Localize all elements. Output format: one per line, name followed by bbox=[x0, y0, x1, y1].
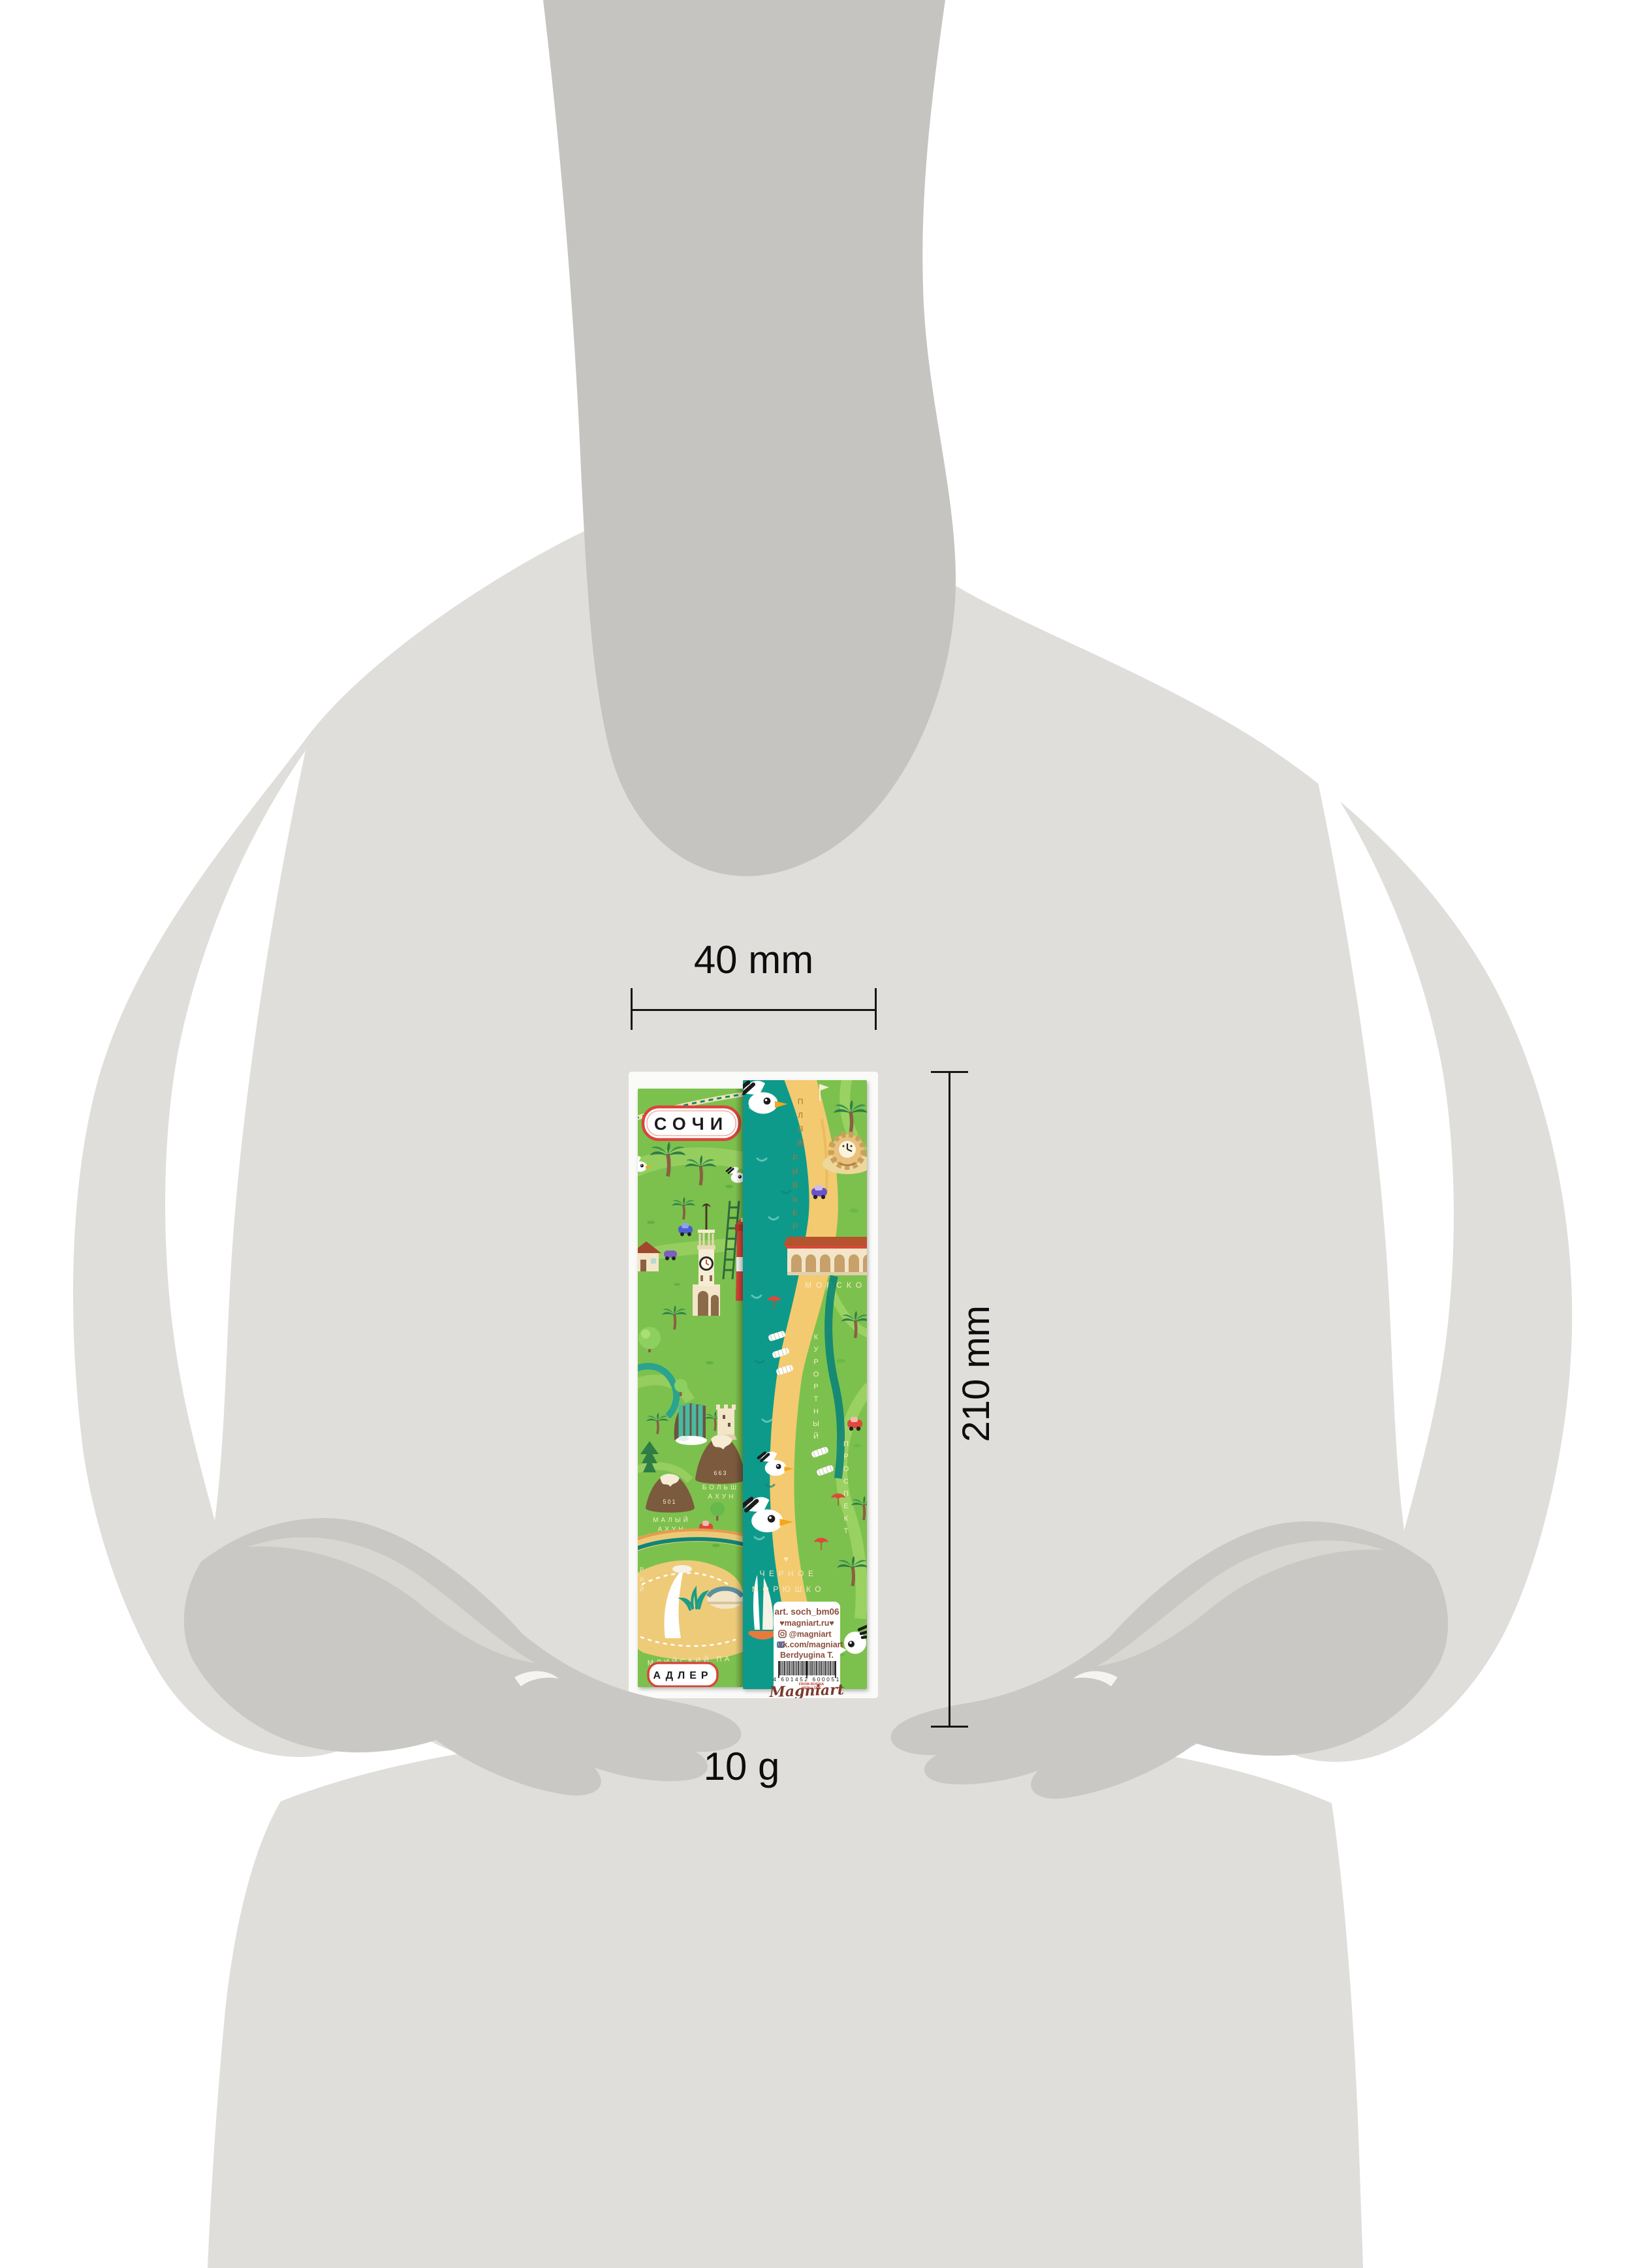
bookmark-back: ПЛЯЖ РИВЬЕРА bbox=[740, 1077, 876, 1689]
sea-name: МОРЮШКО bbox=[752, 1585, 825, 1594]
elevation-label: 501 bbox=[663, 1499, 676, 1505]
olympic-park bbox=[635, 1561, 744, 1660]
instagram-handle: @magniart bbox=[789, 1630, 832, 1639]
site-link: ♥magniart.ru♥ bbox=[779, 1619, 834, 1628]
vk-row: vk.com/magniart bbox=[777, 1640, 844, 1649]
dim-height-tick-bottom bbox=[931, 1726, 968, 1728]
marine-station bbox=[783, 1237, 875, 1275]
bookmark-front: 663 501 БОЛЬШ АХУН МАЛЫЙ АХУН bbox=[629, 1089, 755, 1687]
mountain-name: АХУН bbox=[708, 1493, 736, 1500]
scene: 663 501 БОЛЬШ АХУН МАЛЫЙ АХУН bbox=[0, 0, 1632, 2268]
brand-logo: FROM RUSSIA WITH LOVE Magniart bbox=[768, 1681, 844, 1698]
street-label: РИЙ bbox=[638, 1566, 645, 1596]
brand-name: Magniart bbox=[768, 1681, 844, 1698]
city-badge: СОЧИ bbox=[643, 1107, 740, 1140]
waterfall bbox=[674, 1403, 707, 1445]
akhun-tower bbox=[715, 1405, 737, 1440]
vk-link: vk.com/magniart bbox=[778, 1640, 843, 1649]
dim-width-tick-left bbox=[631, 988, 633, 1030]
skirt-silhouette bbox=[208, 1728, 1363, 2268]
dim-width-tick-right bbox=[875, 988, 877, 1030]
street-label: КУРОРТНЫЙ bbox=[812, 1333, 820, 1445]
sea-name: ЧЕРНОЕ bbox=[759, 1569, 817, 1578]
adler-badge-label: АДЛЕР bbox=[653, 1670, 712, 1681]
mountain-name: МАЛЫЙ bbox=[653, 1515, 691, 1524]
beach-label: РИВЬЕРА bbox=[791, 1153, 800, 1249]
weight-label: 10 g bbox=[670, 1744, 813, 1789]
author: Berdyugina T. bbox=[780, 1651, 834, 1660]
art-number: art. soch_bm06 bbox=[774, 1607, 840, 1617]
dim-height-label: 210 mm bbox=[954, 1305, 998, 1442]
street-label: ПРОСПЕКТ bbox=[842, 1440, 850, 1540]
mountain-name: БОЛЬШ bbox=[702, 1484, 739, 1491]
dim-height-label-wrap: 210 mm bbox=[954, 1305, 1001, 1501]
adler-badge: АДЛЕР bbox=[648, 1663, 717, 1686]
city-badge-label: СОЧИ bbox=[654, 1114, 729, 1134]
info-label: art. soch_bm06 ♥magniart.ru♥ @magniart v… bbox=[768, 1602, 847, 1698]
elevation-label: 663 bbox=[714, 1470, 727, 1476]
heart-icon: ♥ bbox=[783, 1554, 789, 1564]
dim-width-label: 40 mm bbox=[631, 937, 877, 982]
beach-label: ПЛЯЖ bbox=[796, 1097, 805, 1152]
dim-width-line bbox=[631, 1009, 877, 1011]
dim-height-tick-top bbox=[931, 1071, 968, 1073]
barcode: 4 601452 600051 bbox=[773, 1661, 841, 1683]
product-card: 663 501 БОЛЬШ АХУН МАЛЫЙ АХУН bbox=[629, 1072, 878, 1698]
dim-height-line bbox=[949, 1072, 950, 1727]
